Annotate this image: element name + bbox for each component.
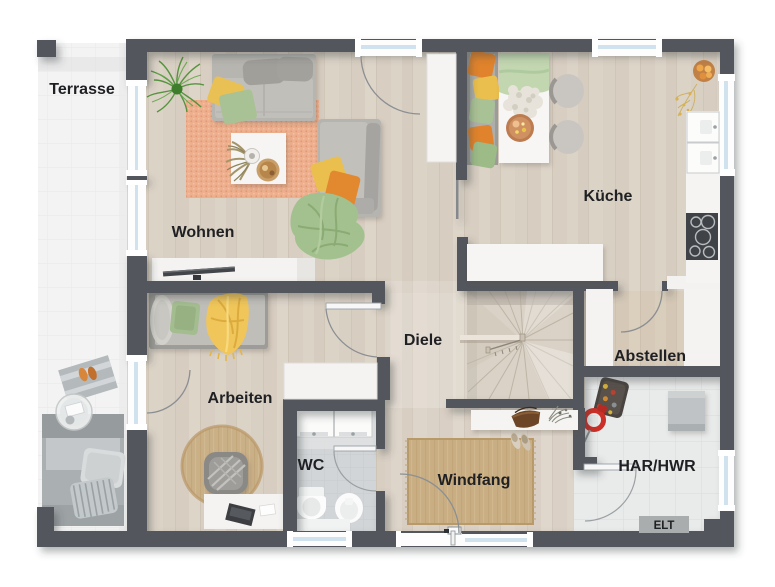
svg-text:Abstellen: Abstellen [614,348,686,365]
svg-text:Terrasse: Terrasse [49,81,115,98]
svg-text:Arbeiten: Arbeiten [208,390,273,407]
svg-text:Windfang: Windfang [438,472,511,489]
svg-text:ELT: ELT [654,520,675,532]
svg-text:Wohnen: Wohnen [172,224,235,241]
svg-text:Küche: Küche [584,188,633,205]
svg-text:HAR/HWR: HAR/HWR [618,458,696,475]
svg-text:WC: WC [298,457,325,474]
svg-text:Diele: Diele [404,332,442,349]
